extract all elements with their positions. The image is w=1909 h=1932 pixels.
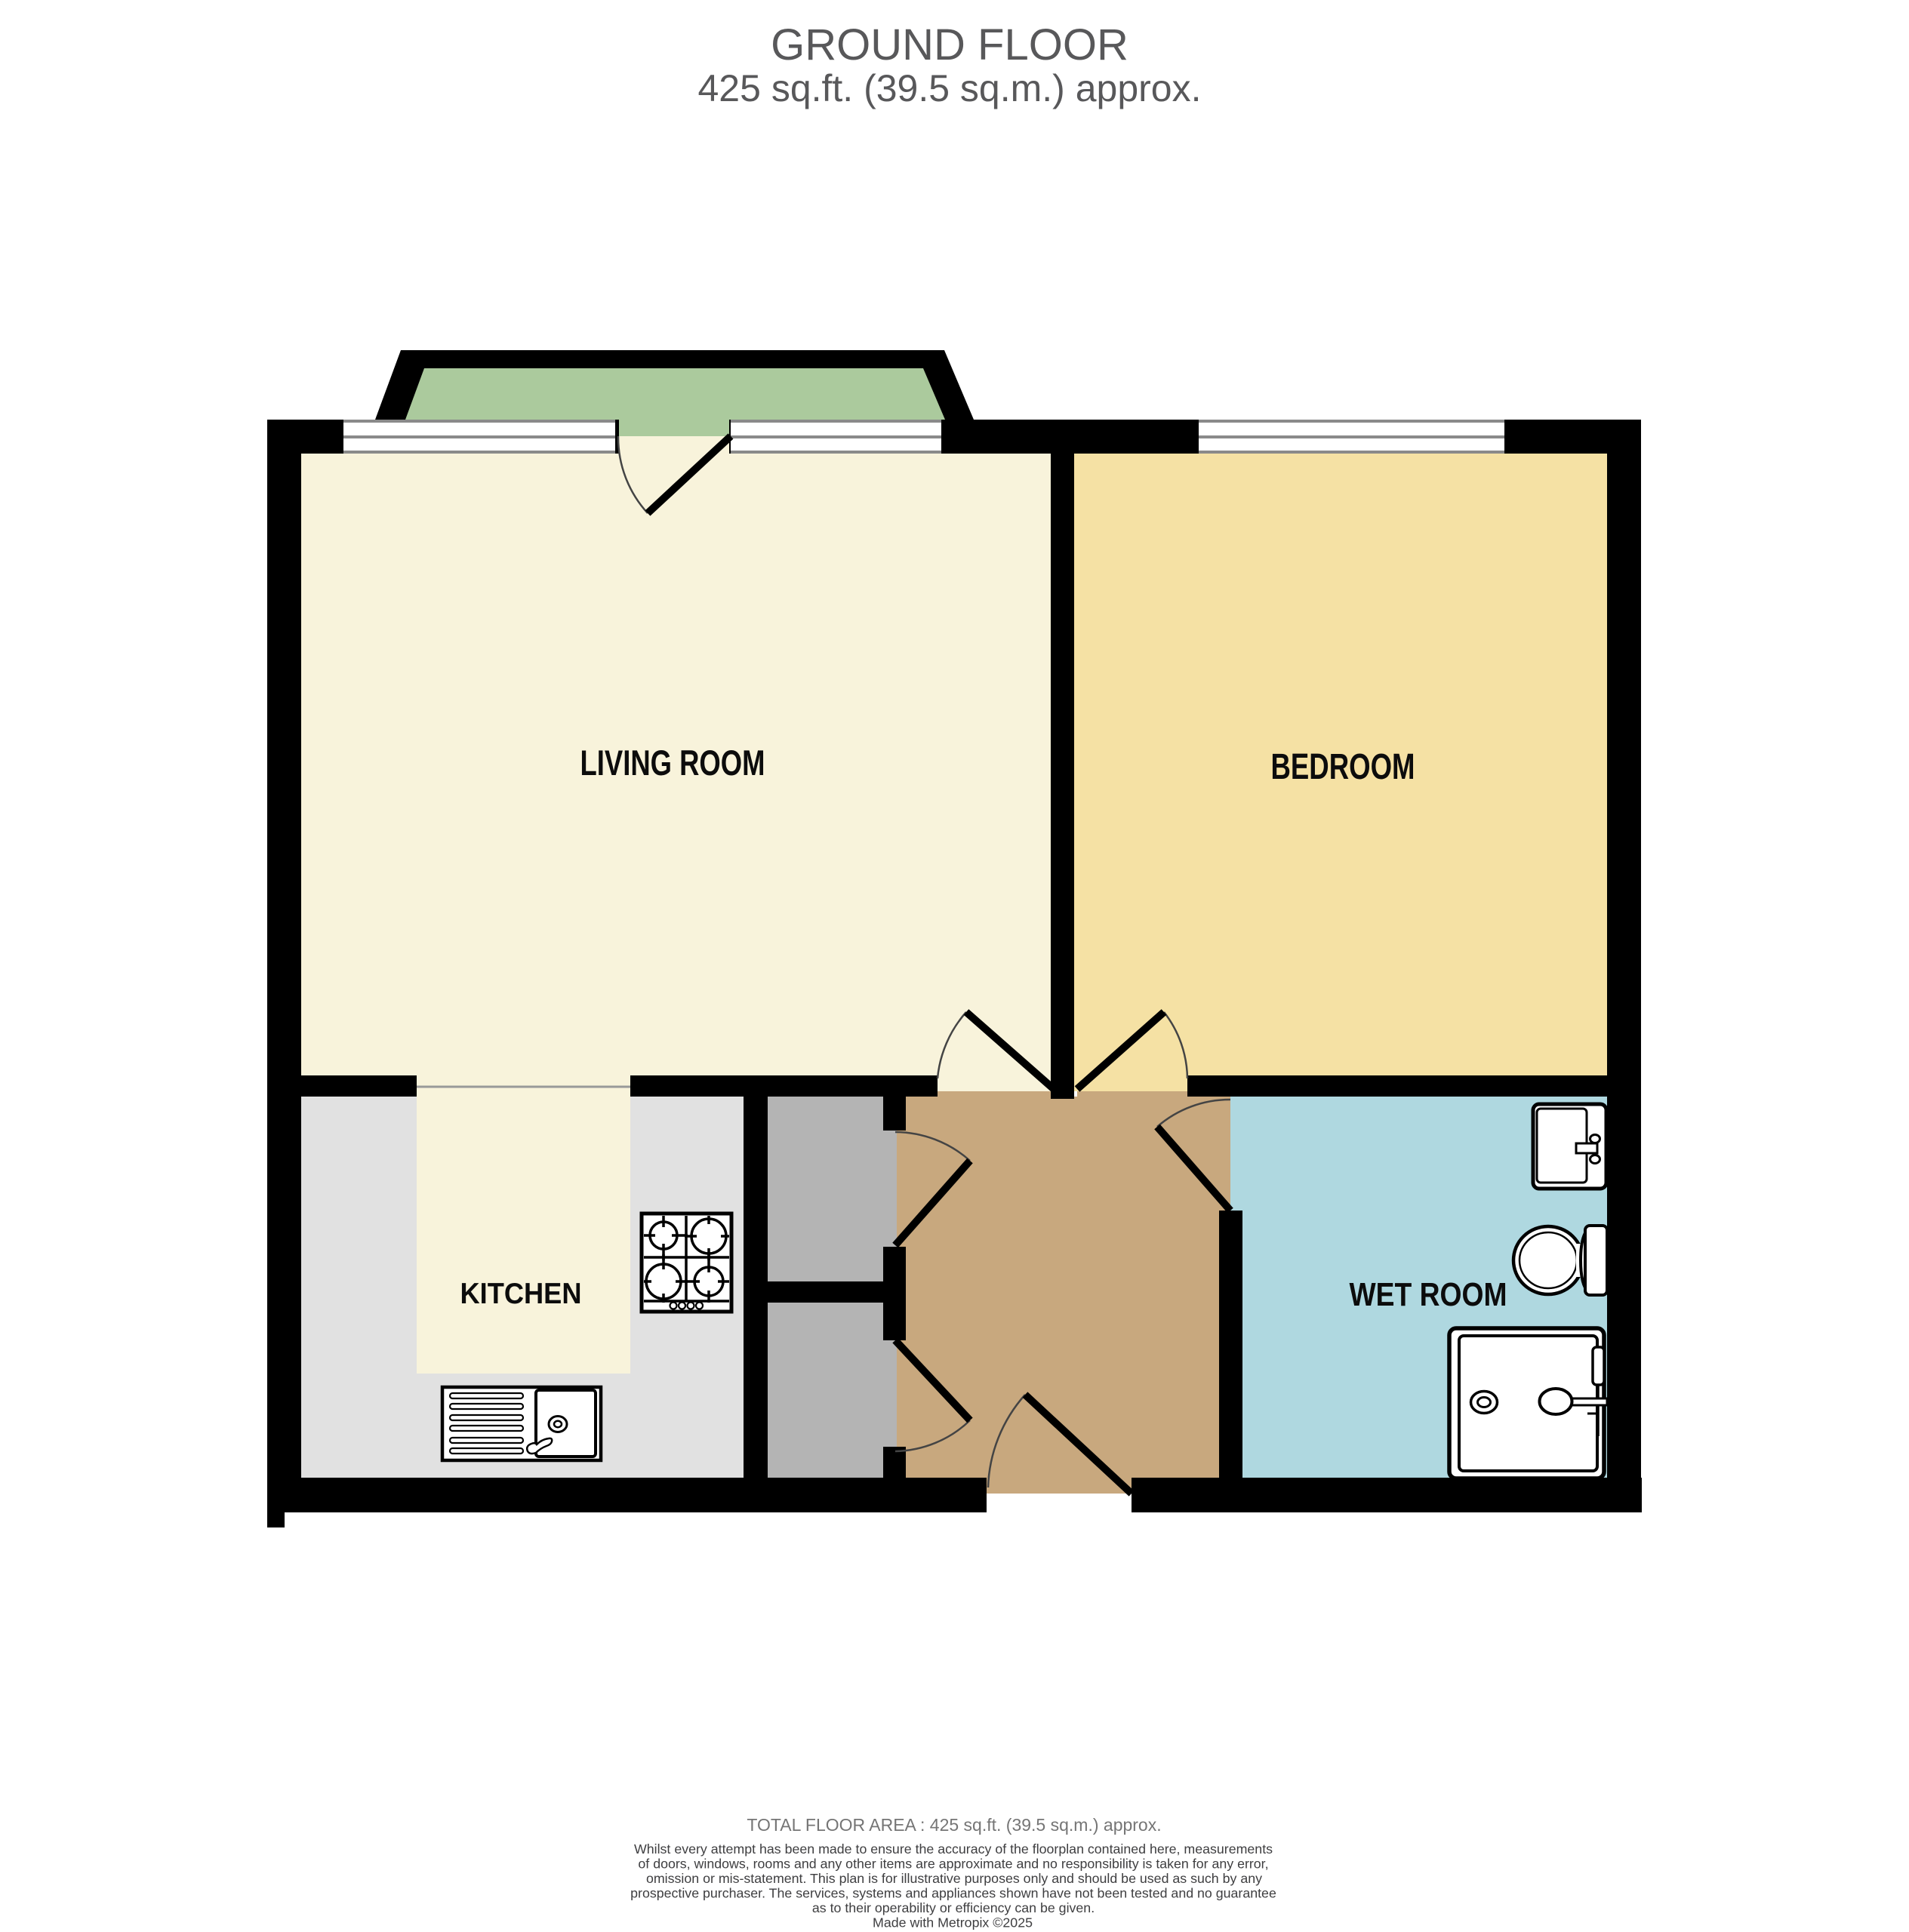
svg-text:LIVING ROOM: LIVING ROOM <box>580 743 765 783</box>
svg-text:BEDROOM: BEDROOM <box>1271 747 1415 787</box>
svg-text:GROUND FLOOR: GROUND FLOOR <box>771 20 1128 69</box>
svg-text:WET ROOM: WET ROOM <box>1350 1276 1507 1313</box>
svg-text:of doors, windows, rooms and a: of doors, windows, rooms and any other i… <box>638 1857 1268 1872</box>
svg-text:425 sq.ft. (39.5 sq.m.) approx: 425 sq.ft. (39.5 sq.m.) approx. <box>698 67 1202 109</box>
svg-text:prospective purchaser. The ser: prospective purchaser. The services, sys… <box>630 1886 1276 1901</box>
svg-text:Whilst every attempt has been: Whilst every attempt has been made to en… <box>634 1841 1273 1857</box>
svg-text:Made with Metropix ©2025: Made with Metropix ©2025 <box>873 1915 1033 1930</box>
svg-text:omission or mis-statement. Thi: omission or mis-statement. This plan is … <box>646 1871 1262 1886</box>
svg-text:as to their operability or eff: as to their operability or efficiency ca… <box>812 1900 1095 1915</box>
svg-text:TOTAL FLOOR AREA : 425 sq.ft.: TOTAL FLOOR AREA : 425 sq.ft. (39.5 sq.m… <box>747 1815 1161 1835</box>
svg-text:KITCHEN: KITCHEN <box>460 1278 582 1310</box>
